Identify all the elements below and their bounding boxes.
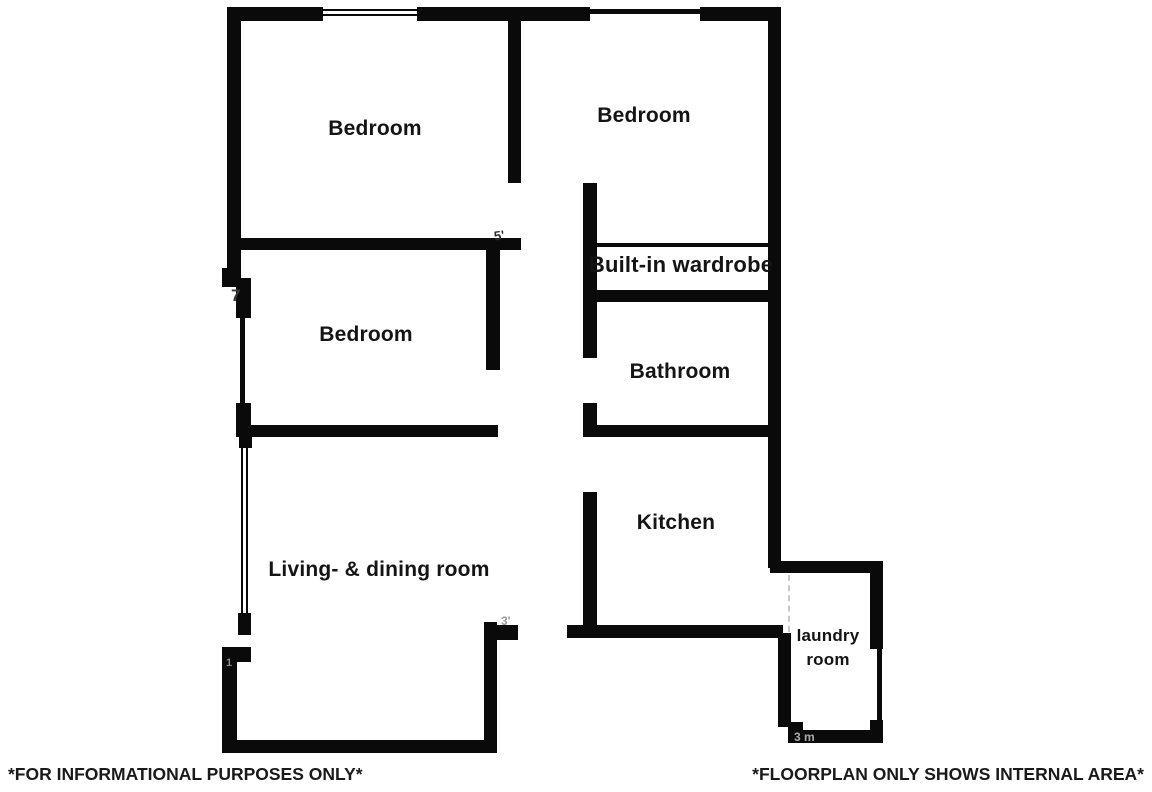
room-label-bathroom: Bathroom — [630, 360, 731, 384]
wall-living-right-lower — [484, 622, 497, 753]
window-bedroom1-pane-line — [323, 14, 417, 16]
room-label-living-dining: Living- & dining room — [268, 558, 489, 582]
wall-laundry-top — [770, 561, 883, 573]
window-bedroom1-pane-line — [323, 9, 417, 11]
wall-living-window-block-top — [239, 430, 252, 448]
window-living-pane-line — [241, 448, 243, 615]
wall-kitchen-left — [583, 492, 597, 638]
wall-kitchen-bottom — [567, 625, 783, 638]
dimension-remnant: 3' — [501, 614, 511, 628]
room-label-kitchen: Kitchen — [637, 511, 715, 535]
room-label-bedroom-middle: Bedroom — [319, 323, 413, 347]
dimension-remnant: 5' — [493, 227, 505, 243]
wall-bedroom-middle-right — [486, 250, 500, 370]
wall-right-exterior — [768, 7, 781, 568]
wall-bathroom-bottom — [583, 425, 770, 437]
dimension-remnant: 3 m — [794, 730, 815, 744]
dimension-remnant: 1 — [226, 657, 232, 669]
wardrobe-opening-line — [597, 243, 768, 247]
window-bedroom-middle — [240, 318, 245, 403]
window-living-pane-line — [246, 448, 248, 615]
room-label-bedroom-top-left: Bedroom — [328, 117, 422, 141]
wall-bedroom-divider — [508, 7, 521, 183]
wall-living-bottom — [227, 740, 497, 753]
floorplan-canvas: Bedroom Bedroom Bedroom Built-in wardrob… — [0, 0, 1152, 792]
dimension-remnant: 7 — [231, 286, 240, 306]
footer-note-internal-area: *FLOORPLAN ONLY SHOWS INTERNAL AREA* — [752, 764, 1144, 785]
footer-note-informational: *FOR INFORMATIONAL PURPOSES ONLY* — [8, 764, 363, 785]
wall-living-window-block-bottom — [238, 613, 251, 635]
wall-wardrobe-bottom — [583, 290, 770, 302]
wall-bedroom1-bottom — [227, 238, 521, 250]
window-bedroom2-pane-line — [590, 9, 700, 14]
room-label-bedroom-top-right: Bedroom — [597, 104, 691, 128]
room-label-wardrobe: Built-in wardrobe — [589, 252, 773, 278]
room-label-laundry: laundry room — [778, 624, 878, 672]
wall-living-top — [236, 425, 498, 437]
